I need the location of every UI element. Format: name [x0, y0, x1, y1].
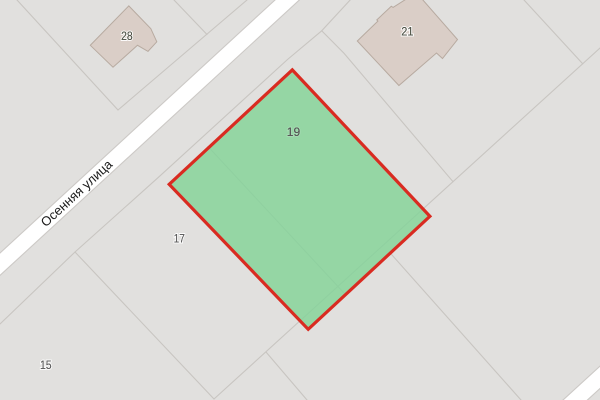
svg-text:15: 15 [40, 358, 52, 372]
svg-text:21: 21 [401, 25, 413, 39]
svg-text:28: 28 [121, 29, 133, 43]
svg-text:19: 19 [287, 125, 300, 139]
svg-text:17: 17 [174, 231, 185, 245]
